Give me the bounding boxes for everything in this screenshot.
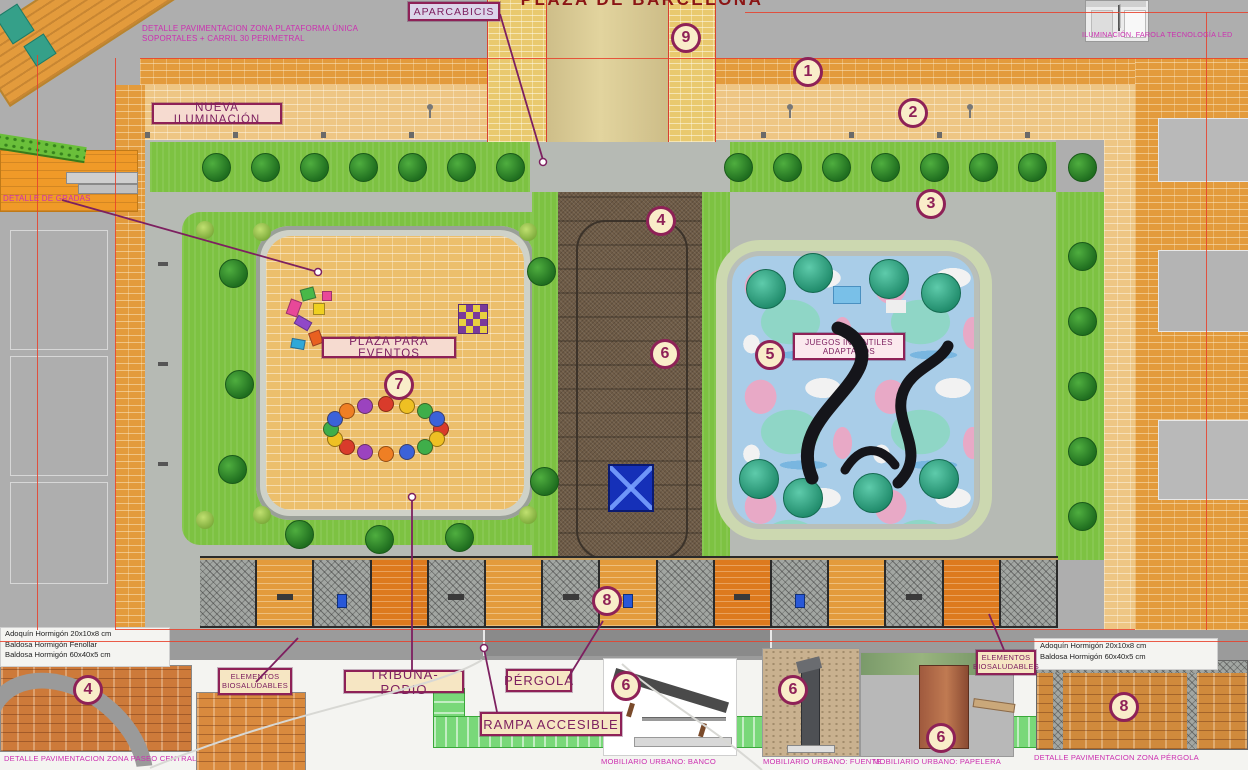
dimension-line-left [37,55,38,630]
building-outline [10,356,108,476]
material-item: Adoquín Hormigón 20x10x8 cm [1040,641,1146,652]
label-pergola-text: PÉRGOLA [504,673,574,688]
pergola-panel [658,560,715,626]
pergola-panel [715,560,772,626]
paseo-left-green [532,192,558,558]
label-tribuna-text: TRIBUNA-PODIO [346,667,462,697]
note-pavimentacion-plataforma: DETALLE PAVIMENTACION ZONA PLATAFORMA ÚN… [142,24,392,43]
caption-banco: MOBILIARIO URBANO: BANCO [601,757,716,766]
pergola-panel [200,560,257,626]
entrance-pier-east [668,0,716,142]
label-rampa-accesible: RAMPA ACCESIBLE [480,712,622,736]
walkway-bench [158,262,168,266]
bin-bench [973,698,1016,713]
pergola-panel [429,560,486,626]
pergola-panel [314,560,371,626]
pergola-panel [944,560,1001,626]
label-aparcabicis-text: APARCABICIS [414,6,495,18]
bench-icon [906,594,922,600]
bench-elevation [642,717,726,721]
fountain-base [787,745,835,753]
building-outline [10,230,108,350]
pergola-panel [543,560,600,626]
pergola-panel [772,560,829,626]
paseo-blue-game [608,464,654,512]
pergola-panel [886,560,943,626]
plaza-outline-bottom [115,629,1135,630]
pergola-detail-post [1187,673,1197,749]
pergola-detail-post [1053,673,1063,749]
pergola-panel [372,560,429,626]
note-iluminacion-led: ILUMINACIÓN. FAROLA TECNOLOGÍA LED [1082,30,1232,40]
pergola-panel [600,560,657,626]
caption-paseo-central: DETALLE PAVIMENTACION ZONA PASEO CENTRAL [4,754,197,763]
gradas-step [66,172,138,184]
bench-leg [626,703,635,718]
label-aparcabicis: APARCABICIS [408,2,500,21]
pergola-panel [486,560,543,626]
water-fountain-icon [623,594,633,608]
pergola-band [200,556,1058,628]
right-building-block [1158,420,1248,500]
page-title: PLAZA DE BARCELONA [512,0,772,10]
label-pergola: PÉRGOLA [506,669,572,692]
gradas-step [78,184,138,194]
material-item: Baldosa Hormigón 60x40x5 cm [5,650,111,661]
entrance-walk [530,140,730,200]
caption-pergola-detalle: DETALLE PAVIMENTACION ZONA PÉRGOLA [1034,753,1199,762]
walkway-bench [158,362,168,366]
inset-bench-drawing [603,658,737,756]
fountain-body [801,663,820,747]
label-nueva-iluminacion-text: NUEVA ILUMINACIÓN [154,102,280,126]
label-tribuna-podio: TRIBUNA-PODIO [344,670,464,693]
playground-pool [833,286,861,304]
label-nueva-iluminacion: NUEVA ILUMINACIÓN [152,103,282,124]
inset-pergola-detail-photo [1036,660,1248,750]
walkway-bench [158,462,168,466]
label-bio-right-line2: BIOSALUDABLES [973,663,1039,672]
water-fountain-icon [337,594,347,608]
playground-patch [886,300,906,313]
inset-paseo-detail-photo [0,665,192,752]
material-item: Adoquín Hormigón 20x10x8 cm [5,629,111,640]
bench-icon [448,594,464,600]
right-green-strip [1056,192,1104,560]
label-bio-left-line2: BIOSALUDABLES [222,682,288,691]
label-plaza-eventos: PLAZA PARA EVENTOS [322,337,456,358]
pergola-panel [257,560,314,626]
label-elementos-bio-left: ELEMENTOS BIOSALUDABLES [218,668,292,695]
lamp-pole [1118,5,1120,31]
building-outline [10,482,108,584]
plaza-outline-top [140,58,1248,59]
bench-elevation-base [634,737,732,747]
bench-leg [698,723,707,738]
events-plaza-floor [266,236,524,510]
water-fountain-icon [795,594,805,608]
checker-game-square [458,304,488,334]
materials-right-list: Adoquín Hormigón 20x10x8 cm Baldosa Horm… [1040,641,1146,662]
pergola-panel [1001,560,1058,626]
label-rampa-text: RAMPA ACCESIBLE [483,717,618,732]
note-pavimentacion-line1: DETALLE PAVIMENTACION ZONA PLATAFORMA ÚN… [142,24,392,34]
label-plaza-eventos-text: PLAZA PARA EVENTOS [324,336,454,360]
accessible-ramp-shape [483,630,772,656]
entrance-pier-west [487,0,547,142]
note-pavimentacion-line2: SOPORTALES + CARRIL 30 PERIMETRAL [142,34,392,44]
dimension-line-top [745,12,1248,13]
tree-icon [1068,153,1097,182]
inset-brick-closeup [196,692,306,770]
bench-icon [563,594,579,600]
right-building-block [1158,118,1248,182]
caption-papelera: MOBILIARIO URBANO: PAPELERA [873,757,1001,766]
label-juegos-infantiles: JUEGOS INFANTILES ADAPTADOS [793,333,905,360]
bench-icon [734,594,750,600]
note-detalle-gradas: DETALLE DE GRADAS [3,194,91,204]
materials-left-list: Adoquín Hormigón 20x10x8 cm Baldosa Horm… [5,629,111,661]
right-building-block [1158,250,1248,332]
section-roof [1086,1,1146,7]
right-arcade-column [1104,140,1135,630]
label-elementos-bio-right: ELEMENTOS BIOSALUDABLES [976,650,1036,675]
caption-fuente: MOBILIARIO URBANO: FUENTE [763,757,882,766]
inset-fountain-photo [762,648,860,757]
plaza-outline-left [115,58,116,630]
bench-icon [277,594,293,600]
pergola-panel [829,560,886,626]
dimension-line-right [1206,12,1207,630]
label-juegos-line2: ADAPTADOS [823,347,875,356]
plaza-plan-canvas: PLAZA DE BARCELONA APARCABICIS NUEVA ILU… [0,0,1248,770]
material-item: Baldosa Hormigón Fenollar [5,640,111,651]
trash-bin [919,665,969,749]
north-entrance-road [545,0,668,142]
material-item: Baldosa Hormigón 60x40x5 cm [1040,652,1146,663]
label-juegos-line1: JUEGOS INFANTILES [805,338,893,347]
